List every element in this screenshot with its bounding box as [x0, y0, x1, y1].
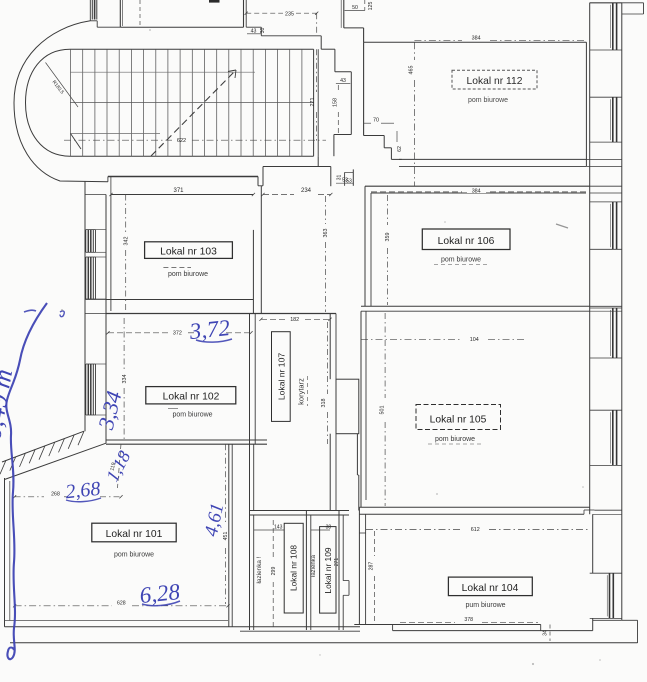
svg-text:pom biurowe: pom biurowe — [168, 271, 208, 278]
svg-text:38: 38 — [326, 524, 332, 530]
svg-text:43: 43 — [251, 29, 257, 35]
svg-text:53: 53 — [346, 179, 352, 185]
svg-text:363: 363 — [323, 229, 329, 238]
svg-text:Lokal nr 112: Lokal nr 112 — [467, 76, 523, 87]
svg-text:612: 612 — [471, 527, 480, 533]
svg-text:1,18: 1,18 — [102, 448, 134, 485]
svg-text:Lokal nr 104: Lokal nr 104 — [462, 583, 519, 594]
svg-text:125: 125 — [368, 2, 374, 11]
svg-text:271: 271 — [310, 98, 316, 107]
svg-text:50: 50 — [352, 5, 358, 11]
svg-text:334: 334 — [122, 375, 128, 384]
svg-text:pom biurowe: pom biurowe — [114, 552, 154, 559]
svg-text:pum biurowe: pum biurowe — [465, 602, 505, 609]
svg-text:372: 372 — [173, 331, 182, 337]
svg-text:łazienka !: łazienka ! — [256, 556, 263, 583]
svg-text:501: 501 — [379, 406, 385, 415]
svg-text:Lokal nr 105: Lokal nr 105 — [430, 415, 487, 426]
svg-text:3,72: 3,72 — [187, 315, 231, 344]
svg-text:pom biurowe: pom biurowe — [441, 257, 481, 264]
svg-text:3,34: 3,34 — [93, 388, 127, 432]
svg-text:40,49 m: 40,49 m — [0, 367, 18, 455]
svg-text:318: 318 — [321, 399, 327, 408]
svg-text:korytarz: korytarz — [297, 378, 306, 405]
svg-text:104: 104 — [470, 337, 479, 343]
svg-text:342: 342 — [124, 237, 130, 246]
svg-text:34: 34 — [543, 630, 549, 636]
svg-text:299: 299 — [271, 567, 277, 576]
svg-text:Lokal nr 109: Lokal nr 109 — [323, 547, 333, 593]
svg-text:268: 268 — [51, 491, 60, 497]
svg-text:384: 384 — [472, 189, 481, 195]
svg-text:Lokal nr 103: Lokal nr 103 — [160, 246, 217, 257]
svg-text:182: 182 — [290, 317, 299, 323]
svg-text:pom biurowe: pom biurowe — [468, 97, 508, 104]
svg-text:pom biurowe: pom biurowe — [172, 412, 212, 419]
svg-text:R183.5: R183.5 — [51, 79, 65, 95]
svg-text:Lokal nr 107: Lokal nr 107 — [276, 353, 286, 401]
svg-text:Lokal nr 101: Lokal nr 101 — [106, 529, 163, 540]
svg-text:384: 384 — [472, 36, 481, 42]
svg-text:62: 62 — [397, 146, 403, 152]
svg-text:465: 465 — [409, 66, 415, 75]
svg-text:622: 622 — [177, 138, 186, 144]
svg-text:359: 359 — [385, 233, 391, 242]
svg-text:451: 451 — [223, 532, 229, 541]
svg-text:43: 43 — [340, 78, 346, 84]
svg-text:Lokal nr 106: Lokal nr 106 — [438, 236, 495, 247]
svg-text:6,28: 6,28 — [138, 579, 181, 608]
svg-text:378: 378 — [464, 617, 473, 623]
svg-text:235: 235 — [285, 11, 294, 17]
svg-text:234: 234 — [301, 188, 312, 194]
svg-text:158: 158 — [332, 98, 338, 107]
svg-text:pom biurowe: pom biurowe — [435, 436, 475, 443]
svg-text:70: 70 — [373, 118, 379, 124]
svg-text:łazienka: łazienka — [311, 554, 317, 577]
svg-text:30: 30 — [260, 28, 266, 34]
svg-text:Lokal nr 102: Lokal nr 102 — [163, 392, 220, 403]
svg-text:371: 371 — [173, 188, 184, 194]
svg-text:31: 31 — [337, 175, 343, 181]
svg-text:143: 143 — [274, 524, 283, 530]
svg-text:Lokal nr 108: Lokal nr 108 — [289, 545, 299, 591]
svg-text:287: 287 — [369, 562, 375, 571]
svg-text:628: 628 — [117, 600, 126, 606]
